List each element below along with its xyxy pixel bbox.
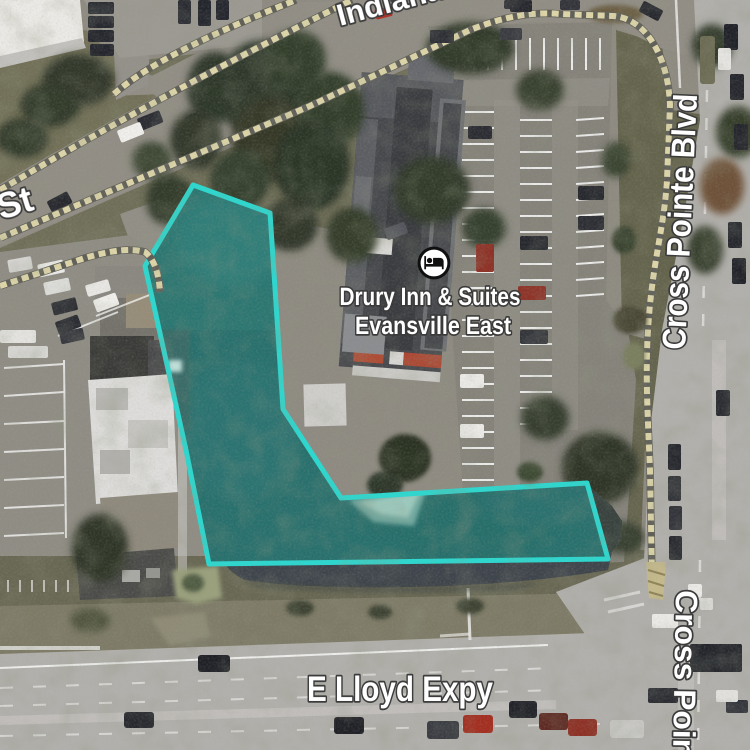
svg-text:Cross Poin: Cross Poin xyxy=(666,590,704,750)
svg-text:Evansville East: Evansville East xyxy=(355,312,512,340)
svg-text:Drury Inn & Suites: Drury Inn & Suites xyxy=(339,283,520,311)
svg-text:E Lloyd Expy: E Lloyd Expy xyxy=(307,670,493,709)
